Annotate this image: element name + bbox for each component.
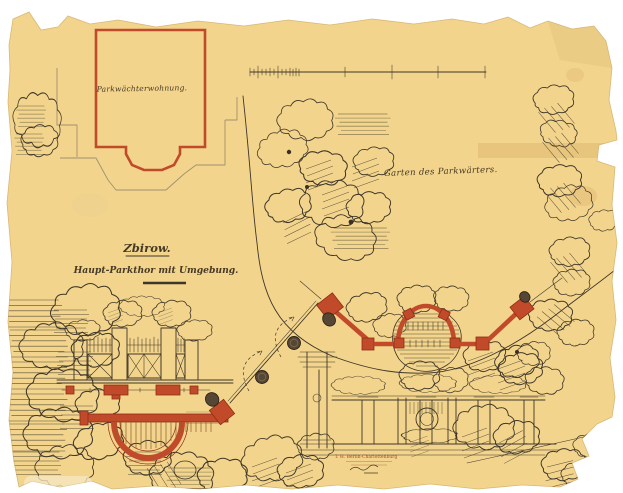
stamp-line1: T. H. Berlin-Charlottenburg (335, 455, 398, 460)
drawing-canvas: Parkwächterwohnung. Garten des Parkwärte… (0, 0, 623, 493)
scanned-plan-drawing: Parkwächterwohnung. Garten des Parkwärte… (0, 0, 623, 493)
tape-strip (478, 143, 623, 158)
building-label: Parkwächterwohnung. (96, 83, 188, 94)
paper-damage-patch (24, 476, 92, 493)
title-line2: Haupt-Parkthor mit Umgebung. (73, 265, 239, 276)
title-line1: Zbirow. (122, 241, 170, 255)
